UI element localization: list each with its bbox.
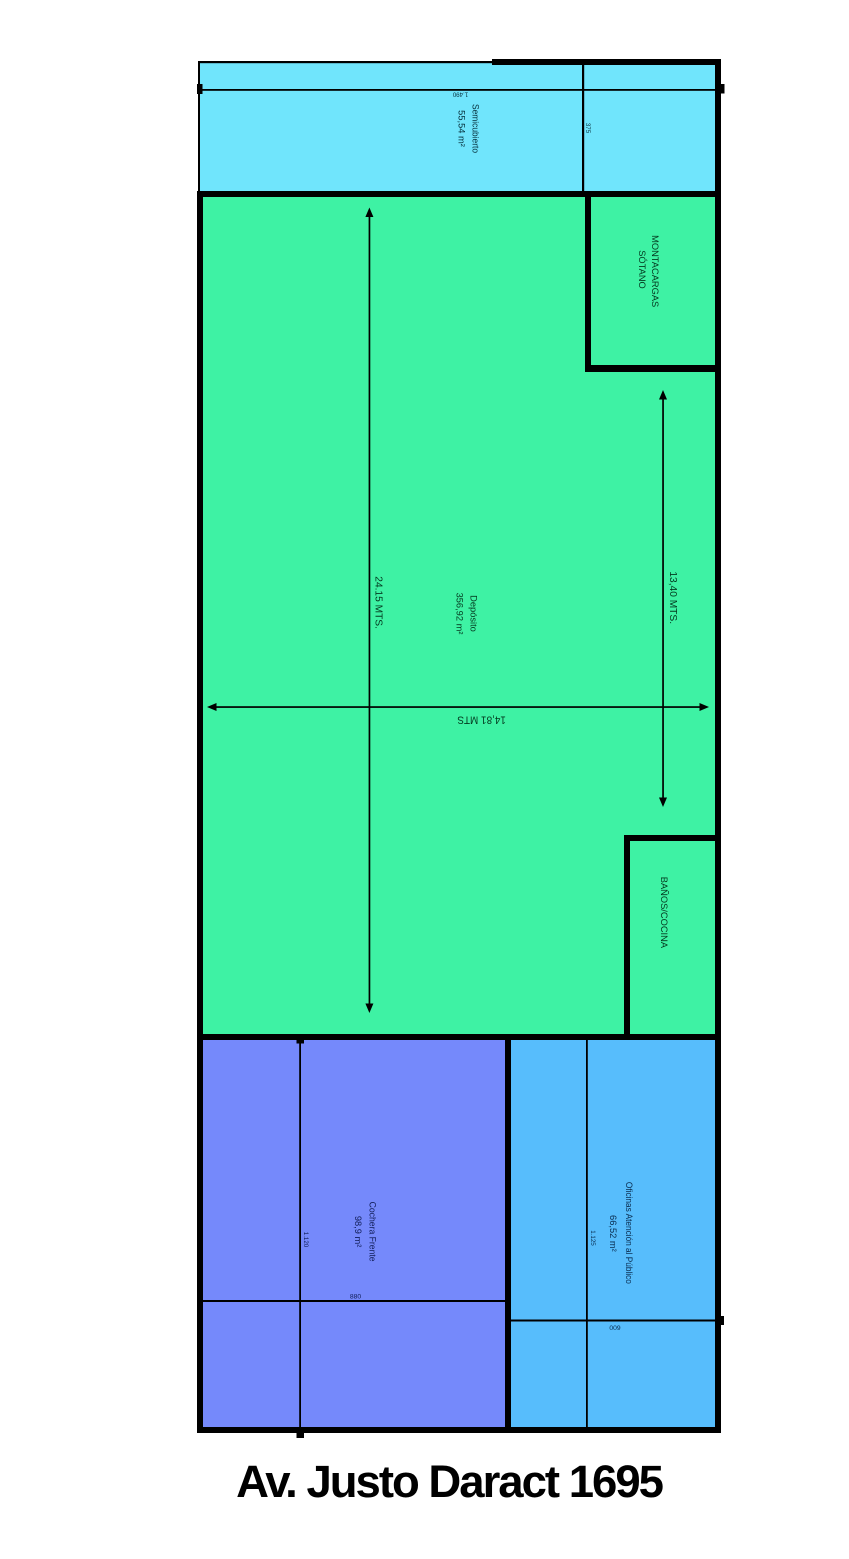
svg-text:55,54 m²: 55,54 m² <box>457 110 467 147</box>
svg-text:Depósito: Depósito <box>468 595 478 632</box>
svg-text:Av. Justo Daract 1695: Av. Justo Daract 1695 <box>236 1456 664 1507</box>
svg-text:1.490: 1.490 <box>452 91 468 98</box>
svg-text:Semicubierto: Semicubierto <box>471 104 481 153</box>
svg-text:356,92 m²: 356,92 m² <box>454 593 464 635</box>
svg-text:66,52 m²: 66,52 m² <box>608 1215 618 1252</box>
svg-text:1.125: 1.125 <box>589 1230 596 1246</box>
svg-text:13,40 MTS.: 13,40 MTS. <box>667 571 678 624</box>
svg-text:375: 375 <box>584 123 591 134</box>
svg-text:Oficinas Atención al Público: Oficinas Atención al Público <box>624 1182 634 1284</box>
svg-text:24.15 MTS.: 24.15 MTS. <box>373 576 384 629</box>
svg-text:Cochera Frente: Cochera Frente <box>367 1202 377 1262</box>
svg-text:1.120: 1.120 <box>302 1232 309 1248</box>
svg-text:600: 600 <box>609 1323 621 1330</box>
svg-text:SÓTANO: SÓTANO <box>637 250 647 289</box>
svg-text:BAÑOS/COCINA: BAÑOS/COCINA <box>659 877 669 949</box>
svg-text:14,81 MTS: 14,81 MTS <box>457 714 506 726</box>
svg-text:880: 880 <box>350 1294 362 1301</box>
svg-text:MONTACARGAS: MONTACARGAS <box>650 235 660 307</box>
svg-text:98,9 m²: 98,9 m² <box>353 1216 363 1248</box>
